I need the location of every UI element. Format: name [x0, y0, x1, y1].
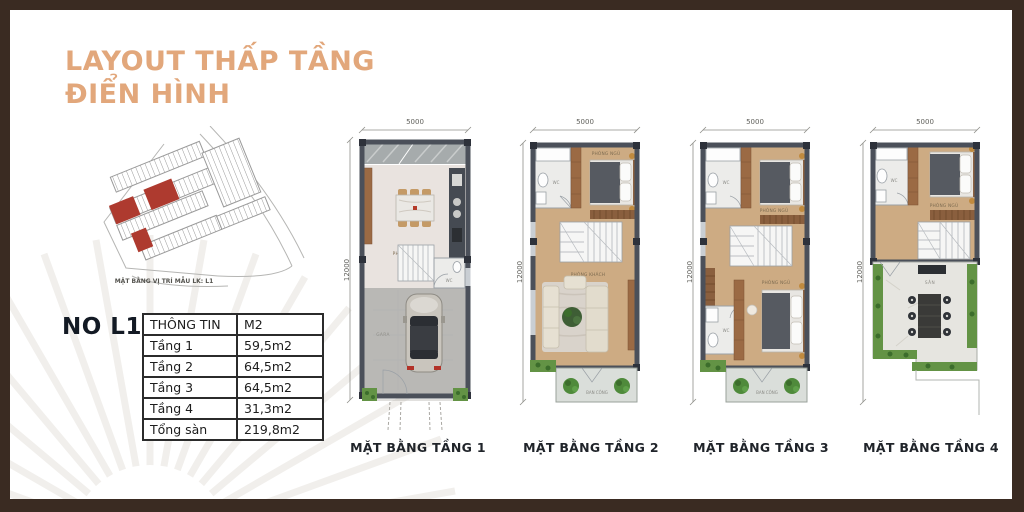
plant-icon: [784, 378, 800, 394]
page-frame: LAYOUT THẤP TẦNG ĐIỂN HÌNH: [0, 0, 1024, 512]
room-label-wc: WC: [446, 278, 453, 283]
table-header-row: THÔNG TIN M2: [143, 314, 323, 335]
wc-room: WC: [535, 147, 571, 208]
page-title-line2: ĐIỂN HÌNH: [65, 79, 375, 112]
svg-text:5000: 5000: [746, 118, 764, 126]
dining-table-icon: [396, 189, 434, 227]
table-row: Tầng 159,5m2: [143, 335, 323, 356]
table-row: Tầng 364,5m2: [143, 377, 323, 398]
table-row: Tầng 264,5m2: [143, 356, 323, 377]
stairs-icon: [730, 226, 792, 266]
rear-awning: [362, 142, 468, 164]
dresser-icon: [760, 215, 805, 224]
wc-room: WC: [875, 147, 908, 205]
svg-text:5000: 5000: [576, 118, 594, 126]
stairs-icon: [398, 245, 434, 281]
driveway: [377, 400, 453, 430]
wardrobe-icon: [571, 147, 581, 208]
wc-room: WC: [434, 258, 465, 288]
room-label-balcony: BAN CÔNG: [586, 390, 608, 395]
dresser-icon: [930, 210, 975, 220]
wardrobe-hatch-icon: [705, 268, 715, 306]
dim-width: 5000: [406, 118, 424, 126]
floor-plan-2-label: MẶT BẰNG TẦNG 2: [516, 440, 666, 455]
wardrobe-icon: [908, 147, 918, 205]
bed-icon: [760, 153, 807, 212]
floor-plan-3: 5000 12000 WC: [686, 110, 836, 465]
sofa-set-icon: [542, 276, 608, 352]
bed-icon: [930, 146, 977, 204]
wardrobe-icon: [741, 147, 751, 208]
floor-plan-2: 5000 12000 WC PHÒNG NGỦ: [516, 110, 666, 465]
car-icon: [403, 294, 445, 372]
page-title-line1: LAYOUT THẤP TẦNG: [65, 46, 375, 79]
terrace: SÂN: [873, 262, 979, 415]
bed-icon: [590, 153, 637, 212]
table-row: Tầng 431,3m2: [143, 398, 323, 419]
svg-text:WC: WC: [553, 180, 560, 185]
dim-height: 12000: [343, 259, 351, 281]
info-table: THÔNG TIN M2 Tầng 159,5m2 Tầng 264,5m2 T…: [142, 313, 324, 441]
site-plan: MẶT BẰNG VỊ TRÍ MẪU LK: L1: [68, 126, 306, 294]
svg-text:WC: WC: [891, 178, 898, 183]
room-label-terrace: SÂN: [925, 279, 935, 286]
svg-text:12000: 12000: [856, 261, 864, 283]
tv-console-icon: [628, 280, 635, 350]
page-title: LAYOUT THẤP TẦNG ĐIỂN HÌNH: [65, 46, 375, 112]
stairs-icon: [560, 222, 622, 262]
floor-plan-1: 5000 12000: [343, 110, 493, 465]
svg-text:12000: 12000: [516, 261, 524, 283]
plant-icon: [733, 378, 749, 394]
canvas: LAYOUT THẤP TẦNG ĐIỂN HÌNH: [10, 10, 1012, 499]
cabinet-icon: [364, 168, 372, 244]
outdoor-table-icon: [908, 294, 951, 338]
header-m2: M2: [237, 314, 323, 335]
dresser-icon: [590, 210, 635, 219]
wc-room-upper: WC: [705, 147, 741, 208]
room-label-balcony: BAN CÔNG: [756, 390, 778, 395]
table-row: Tổng sàn219,8m2: [143, 419, 323, 440]
plant-icon: [614, 378, 630, 394]
floor-plan-1-label: MẶT BẰNG TẦNG 1: [343, 440, 493, 455]
room-label-garage: GARA: [376, 332, 390, 338]
plant-icon: [563, 378, 579, 394]
site-plan-caption: MẶT BẰNG VỊ TRÍ MẪU LK: L1: [115, 277, 214, 285]
svg-text:12000: 12000: [686, 261, 694, 283]
svg-text:WC: WC: [723, 180, 730, 185]
floor-plan-4-label: MẶT BẰNG TẦNG 4: [856, 440, 1006, 455]
header-thong-tin: THÔNG TIN: [143, 314, 237, 335]
kitchen-counter-icon: [449, 168, 465, 264]
svg-text:5000: 5000: [916, 118, 934, 126]
floor-plan-3-label: MẶT BẰNG TẦNG 3: [686, 440, 836, 455]
svg-text:WC: WC: [723, 328, 730, 333]
floor-plan-4: 5000 12000 WC: [856, 110, 1006, 465]
stairs-icon: [918, 222, 970, 259]
unit-code: NO L1: [62, 314, 142, 340]
site-lot-rows: [99, 126, 270, 265]
